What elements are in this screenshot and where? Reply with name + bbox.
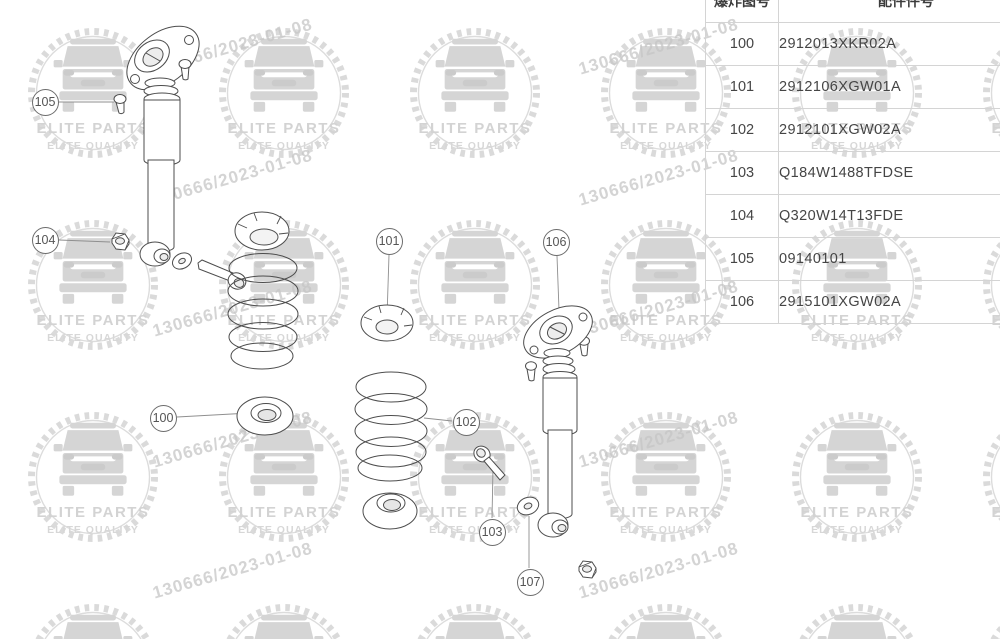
callout-103: 103 [479,519,506,546]
callout-105: 105 [32,89,59,116]
callout-101: 101 [376,228,403,255]
callout-107: 107 [517,569,544,596]
callout-106: 106 [543,229,570,256]
callout-104: 104 [32,227,59,254]
callout-100: 100 [150,405,177,432]
parts-catalog-page: ELITE PARTS ELITE QUALITY [0,0,1000,639]
callout-102: 102 [453,409,480,436]
callout-layer: 105104100101102103106107 [0,0,1000,639]
